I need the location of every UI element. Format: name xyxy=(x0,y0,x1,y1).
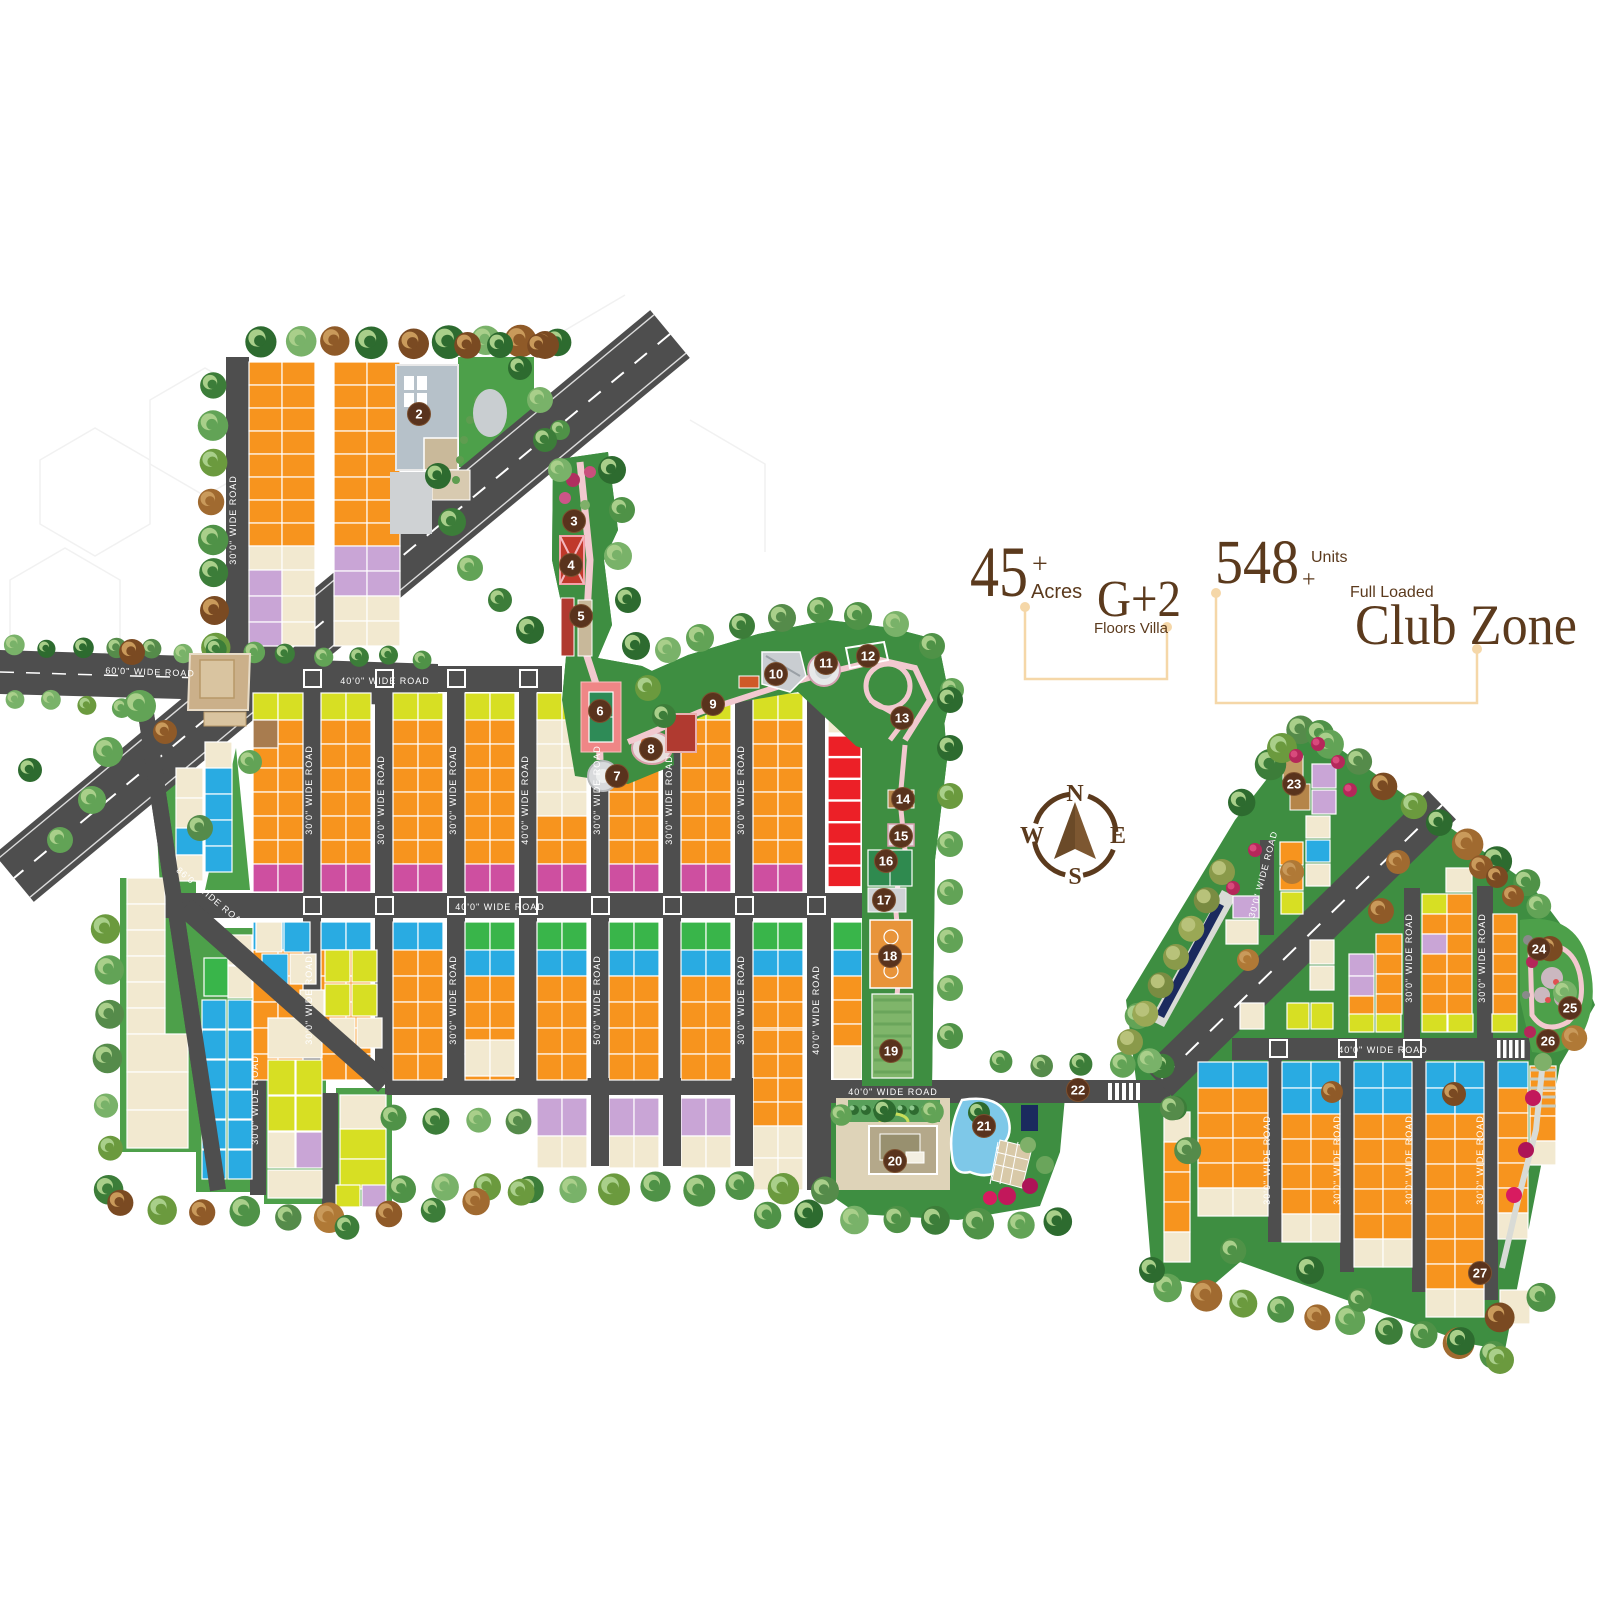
svg-text:13: 13 xyxy=(895,711,909,726)
svg-text:22: 22 xyxy=(1071,1083,1085,1098)
svg-text:40'0" WIDE ROAD: 40'0" WIDE ROAD xyxy=(455,902,544,912)
svg-text:26: 26 xyxy=(1541,1034,1555,1049)
svg-text:30'0" WIDE ROAD: 30'0" WIDE ROAD xyxy=(664,755,674,844)
svg-text:18: 18 xyxy=(883,949,897,964)
svg-text:Acres: Acres xyxy=(1031,581,1082,603)
svg-text:Club Zone: Club Zone xyxy=(1355,594,1577,657)
svg-text:19: 19 xyxy=(884,1044,898,1059)
svg-text:12: 12 xyxy=(861,649,875,664)
svg-text:40'0" WIDE ROAD: 40'0" WIDE ROAD xyxy=(811,965,821,1054)
svg-text:2: 2 xyxy=(415,407,422,422)
svg-text:548: 548 xyxy=(1215,529,1299,597)
svg-text:4: 4 xyxy=(567,558,575,573)
svg-text:11: 11 xyxy=(819,656,833,671)
svg-text:20: 20 xyxy=(888,1154,902,1169)
svg-text:30'0" WIDE ROAD: 30'0" WIDE ROAD xyxy=(1404,913,1414,1002)
svg-text:50'0" WIDE ROAD: 50'0" WIDE ROAD xyxy=(592,955,602,1044)
svg-text:15: 15 xyxy=(894,829,908,844)
svg-text:30'0" WIDE ROAD: 30'0" WIDE ROAD xyxy=(448,955,458,1044)
svg-text:25: 25 xyxy=(1563,1001,1577,1016)
svg-text:Floors Villa: Floors Villa xyxy=(1094,620,1169,637)
svg-text:6: 6 xyxy=(596,704,603,719)
svg-text:30'0" WIDE ROAD: 30'0" WIDE ROAD xyxy=(250,1055,260,1144)
svg-text:+: + xyxy=(1302,567,1316,593)
svg-text:3: 3 xyxy=(570,514,577,529)
svg-text:27: 27 xyxy=(1473,1266,1487,1281)
svg-text:14: 14 xyxy=(896,792,911,807)
svg-text:30'0" WIDE ROAD: 30'0" WIDE ROAD xyxy=(592,745,602,834)
svg-text:Units: Units xyxy=(1311,549,1347,566)
svg-text:W: W xyxy=(1020,823,1044,849)
svg-text:16: 16 xyxy=(879,854,893,869)
svg-text:30'0" WIDE ROAD: 30'0" WIDE ROAD xyxy=(1475,1115,1485,1204)
svg-text:40'0" WIDE ROAD: 40'0" WIDE ROAD xyxy=(848,1087,937,1097)
svg-text:9: 9 xyxy=(709,697,716,712)
svg-text:8: 8 xyxy=(647,742,654,757)
svg-text:30'0" WIDE ROAD: 30'0" WIDE ROAD xyxy=(1404,1115,1414,1204)
svg-text:30'0" WIDE ROAD: 30'0" WIDE ROAD xyxy=(376,755,386,844)
svg-text:S: S xyxy=(1068,864,1081,890)
svg-text:40'0" WIDE ROAD: 40'0" WIDE ROAD xyxy=(520,755,530,844)
svg-text:E: E xyxy=(1110,823,1126,849)
svg-text:7: 7 xyxy=(613,769,620,784)
svg-text:21: 21 xyxy=(977,1119,991,1134)
svg-text:10: 10 xyxy=(769,667,783,682)
svg-text:30'0" WIDE ROAD: 30'0" WIDE ROAD xyxy=(736,955,746,1044)
svg-text:24: 24 xyxy=(1532,942,1547,957)
svg-text:17: 17 xyxy=(877,893,891,908)
svg-text:+: + xyxy=(1032,549,1048,580)
svg-text:23: 23 xyxy=(1287,777,1301,792)
svg-text:30'0" WIDE ROAD: 30'0" WIDE ROAD xyxy=(304,955,314,1044)
svg-text:40'0" WIDE ROAD: 40'0" WIDE ROAD xyxy=(1338,1045,1427,1055)
svg-text:30'0" WIDE ROAD: 30'0" WIDE ROAD xyxy=(1262,1115,1272,1204)
svg-text:30'0" WIDE ROAD: 30'0" WIDE ROAD xyxy=(1477,913,1487,1002)
svg-text:30'0" WIDE ROAD: 30'0" WIDE ROAD xyxy=(736,745,746,834)
svg-text:30'0" WIDE ROAD: 30'0" WIDE ROAD xyxy=(304,745,314,834)
svg-text:30'0" WIDE ROAD: 30'0" WIDE ROAD xyxy=(448,745,458,834)
svg-text:5: 5 xyxy=(577,609,584,624)
svg-text:40'0" WIDE ROAD: 40'0" WIDE ROAD xyxy=(340,676,429,686)
svg-text:30'0" WIDE ROAD: 30'0" WIDE ROAD xyxy=(228,475,238,564)
svg-text:30'0" WIDE ROAD: 30'0" WIDE ROAD xyxy=(1332,1115,1342,1204)
svg-text:45: 45 xyxy=(970,532,1028,612)
